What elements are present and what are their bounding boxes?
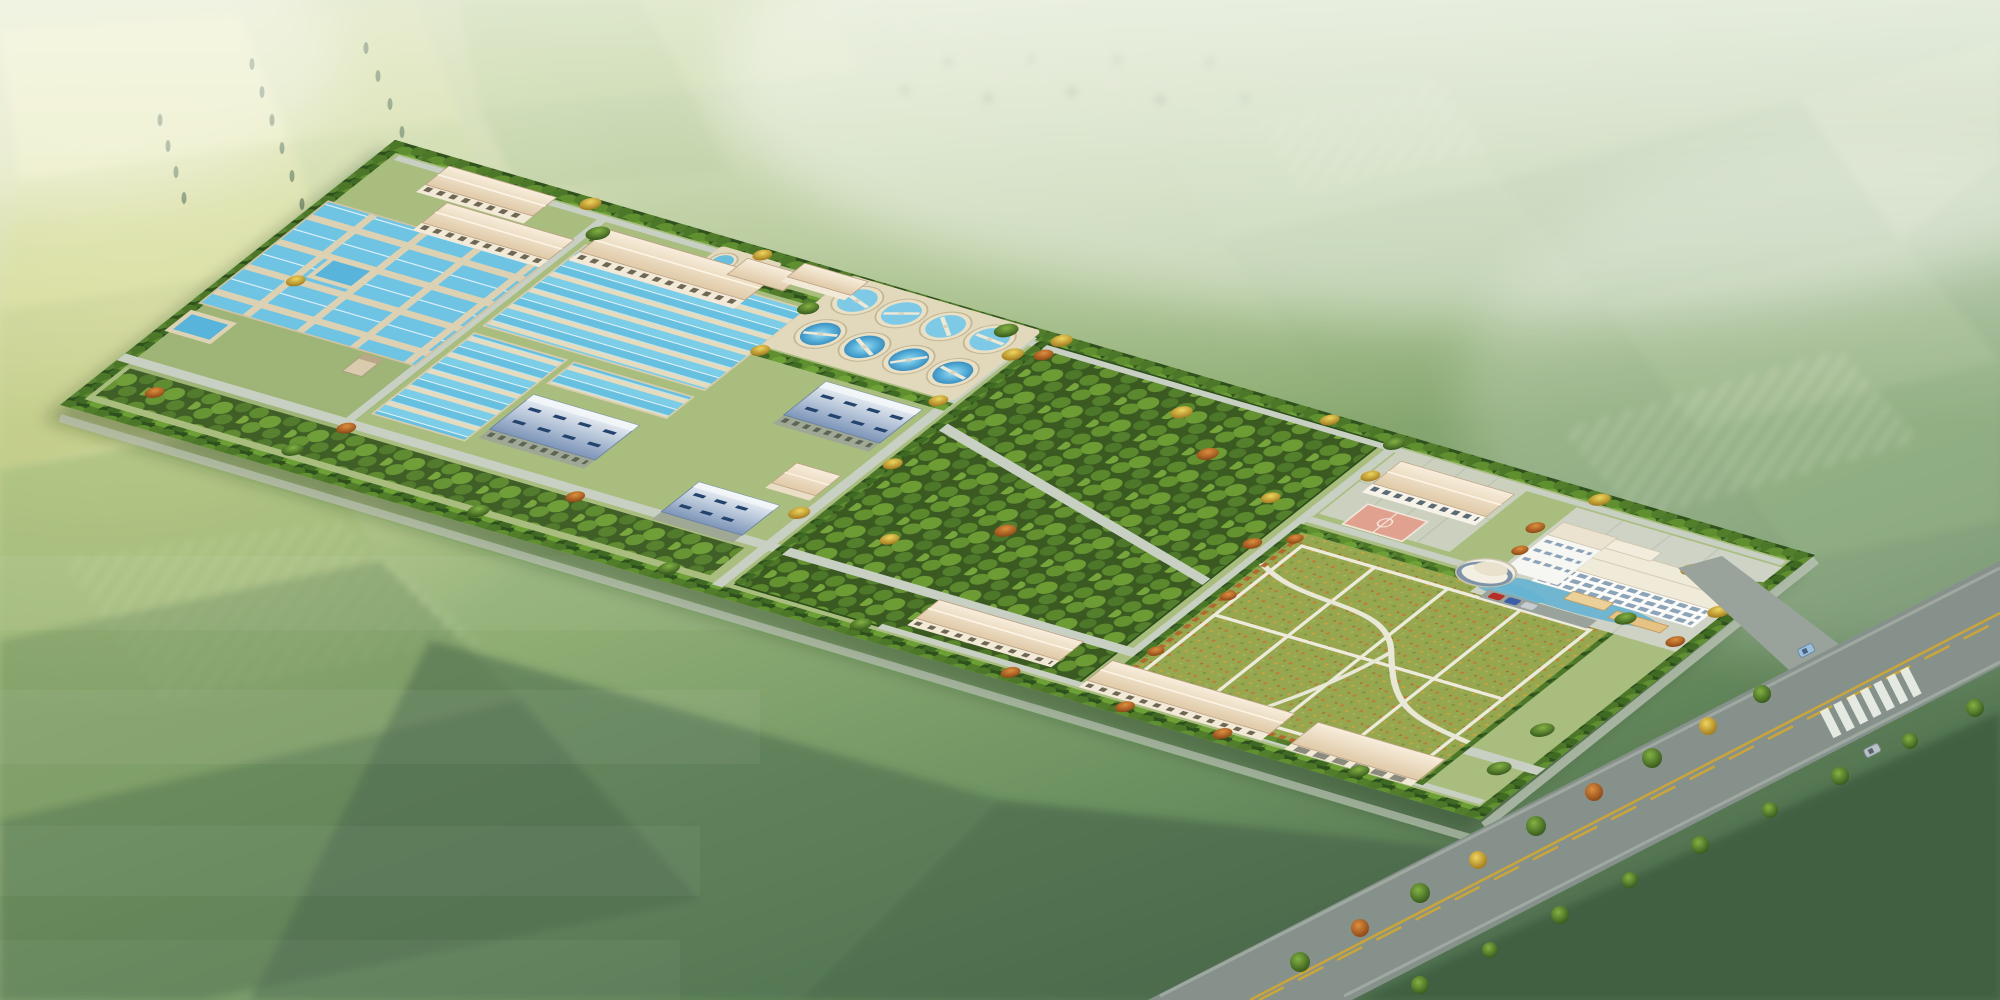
tree <box>1753 685 1771 703</box>
tree <box>1290 952 1310 972</box>
tree <box>1642 748 1662 768</box>
tree <box>1410 883 1430 903</box>
tree <box>1526 816 1546 836</box>
tree <box>1351 919 1369 937</box>
tree <box>1691 836 1709 854</box>
tree <box>1831 767 1849 785</box>
tree <box>1551 906 1569 924</box>
tree <box>1699 717 1717 735</box>
tree <box>1762 802 1778 818</box>
aerial-rendering <box>0 0 2000 1000</box>
tree <box>1622 872 1638 888</box>
tree <box>1469 851 1487 869</box>
tree <box>1585 783 1603 801</box>
tree <box>1482 942 1498 958</box>
rendering-scene <box>0 0 2000 1000</box>
tree <box>1966 699 1984 717</box>
tree <box>1902 733 1918 749</box>
tree <box>1411 976 1429 994</box>
